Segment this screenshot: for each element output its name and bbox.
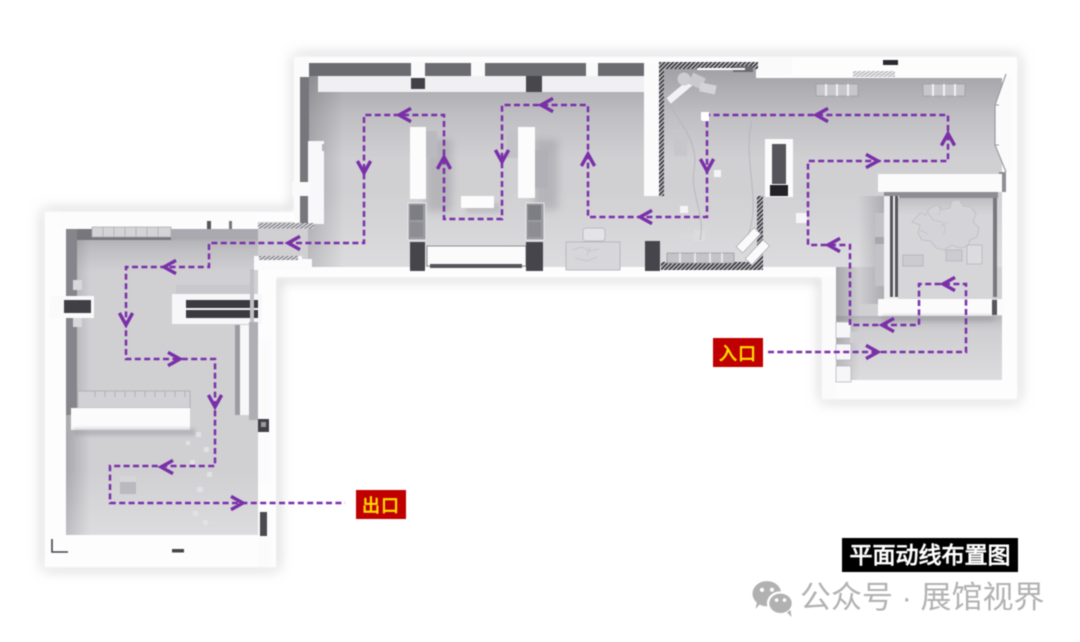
svg-text:入口: 入口	[719, 344, 757, 364]
svg-text:公众号 · 展馆视界: 公众号 · 展馆视界	[800, 580, 1045, 615]
svg-text:出口: 出口	[362, 495, 400, 516]
svg-text:平面动线布置图: 平面动线布置图	[850, 542, 1011, 568]
